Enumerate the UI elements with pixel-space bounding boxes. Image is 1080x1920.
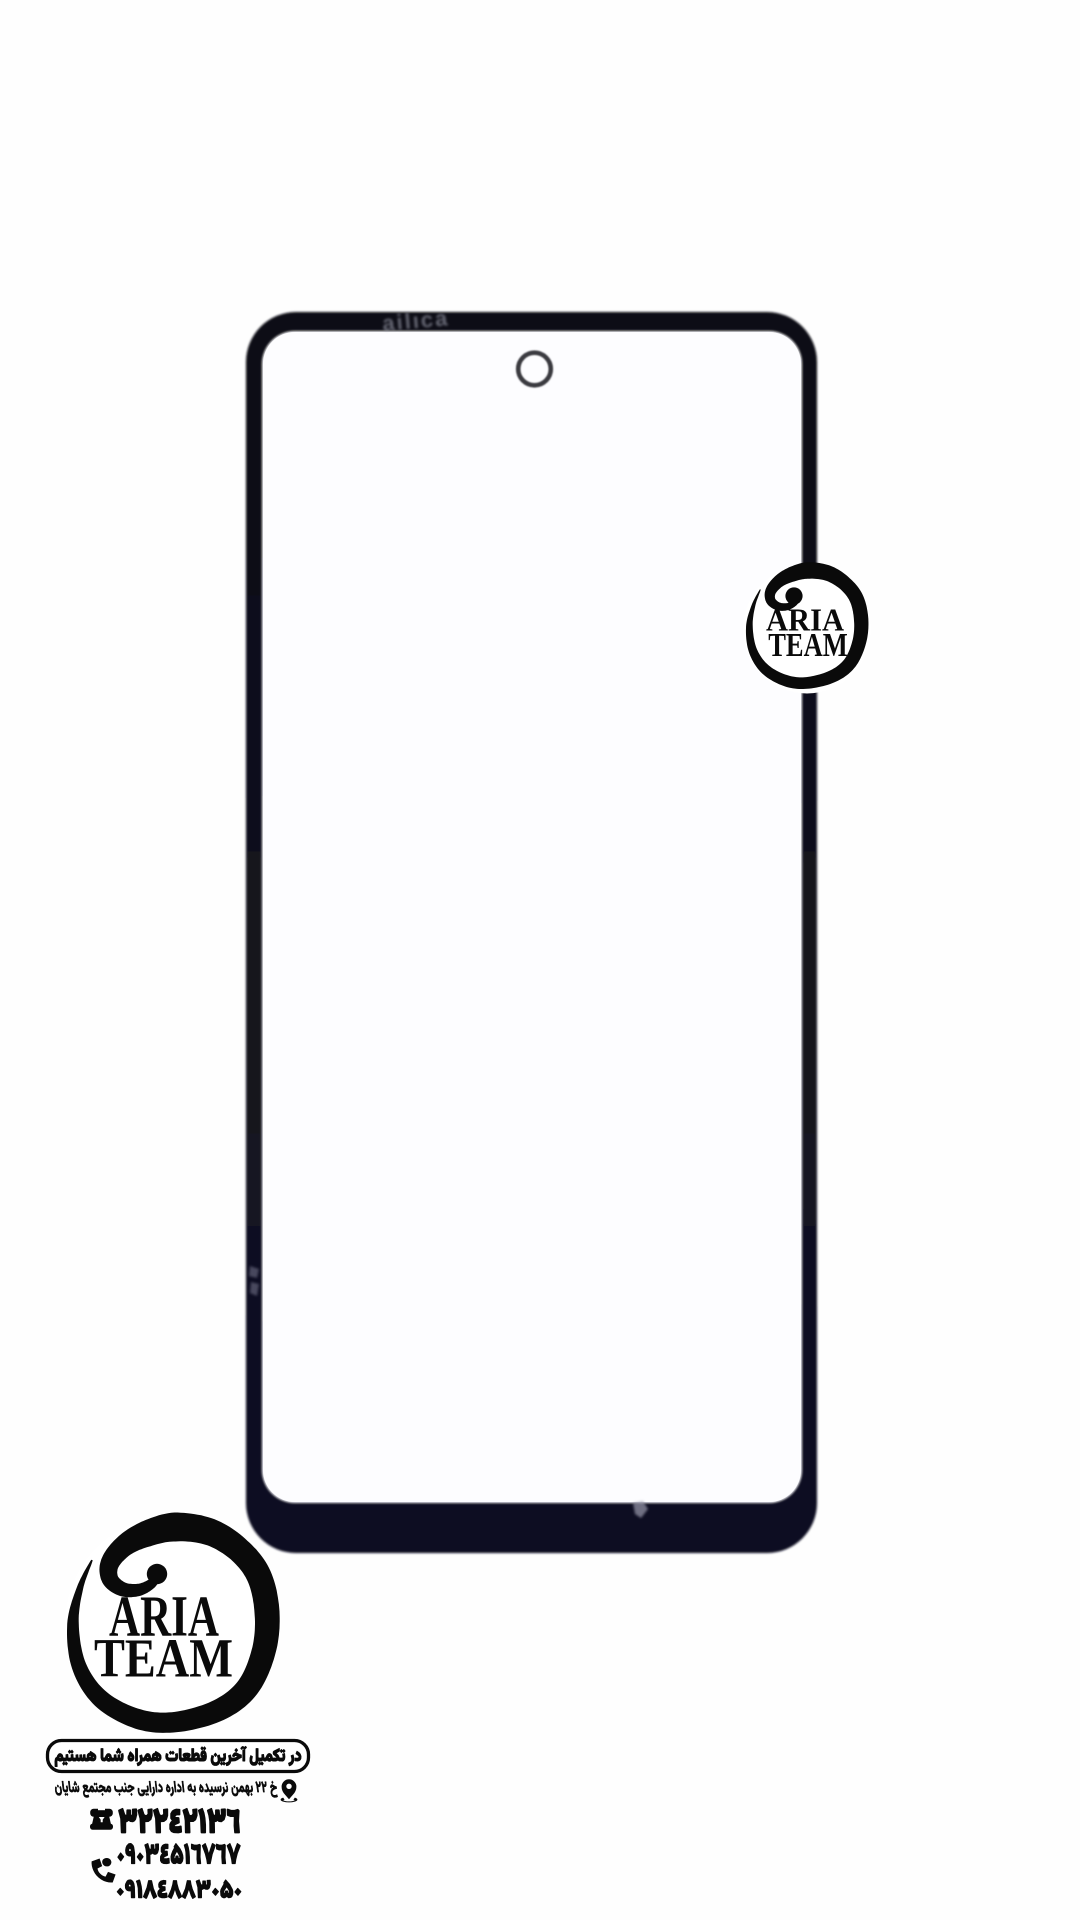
svg-text:TEAM: TEAM xyxy=(768,627,848,664)
svg-text:TEAM: TEAM xyxy=(94,1628,233,1689)
